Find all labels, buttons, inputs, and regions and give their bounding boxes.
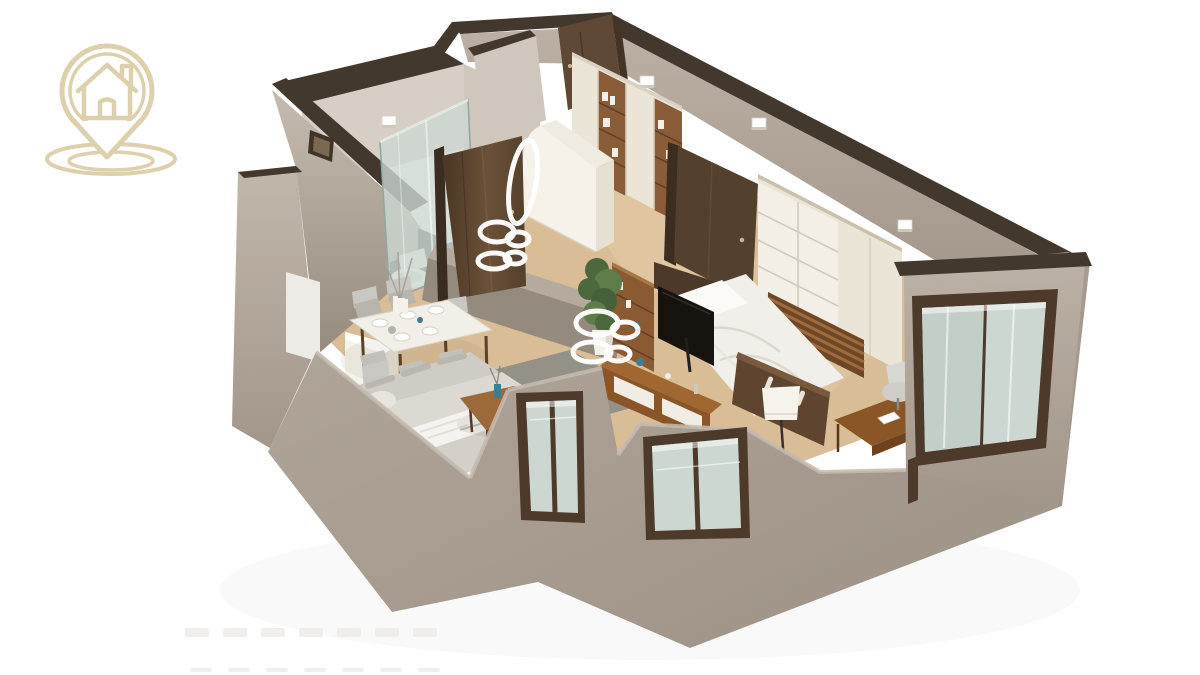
watermark-mark (299, 628, 323, 637)
wall-sconce-light (898, 220, 912, 232)
page (0, 0, 1200, 675)
living-window (516, 391, 585, 523)
wall-sconce-light (382, 116, 396, 128)
blue-vase (494, 384, 501, 398)
logo-house-location-pin (47, 46, 175, 174)
wall-sconce-light (752, 118, 766, 130)
watermark-mark (190, 668, 212, 672)
wall-white-panel (286, 272, 320, 362)
watermark-mark (418, 668, 440, 672)
wall-sconce-light (640, 76, 654, 88)
floor-plank-line (1094, 482, 1200, 660)
watermark-mark (375, 628, 399, 637)
floor-plank-line (1042, 482, 1200, 660)
watermark-mark (261, 628, 285, 637)
watermark-mark (228, 668, 250, 672)
watermark-mark (380, 668, 402, 672)
watermark-mark (266, 668, 288, 672)
watermark-mark (223, 628, 247, 637)
floor-plank-line (1146, 482, 1200, 660)
floor-plank-line (1172, 482, 1200, 660)
watermark-mark (342, 668, 364, 672)
watermark-mark (413, 628, 437, 637)
watermark-mark (337, 628, 361, 637)
floor-plank-line (1068, 482, 1200, 660)
watermark-mark (304, 668, 326, 672)
floorplan-render (0, 0, 1200, 675)
floor-plank-line (1120, 482, 1200, 660)
watermark-mark (185, 628, 209, 637)
logo-house-icon (78, 65, 136, 118)
bedroom-window (643, 427, 750, 540)
